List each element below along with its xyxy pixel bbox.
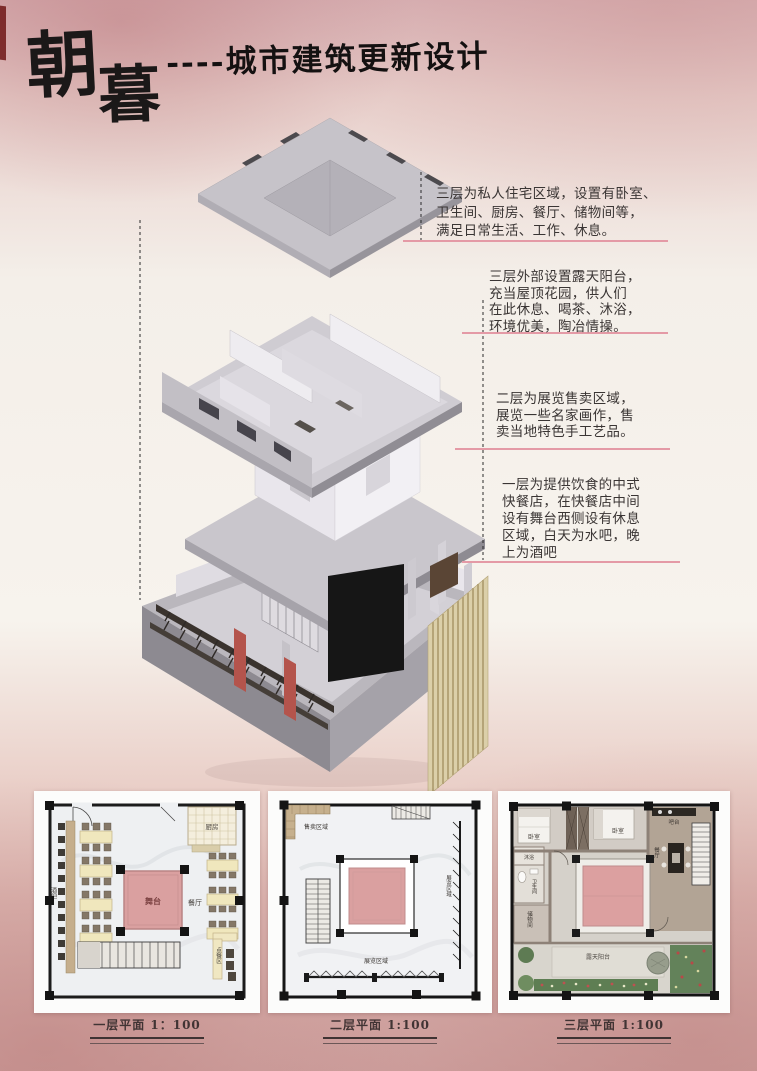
plan-card-floor2: 售卖区域 xyxy=(268,791,492,1013)
caption-rule xyxy=(90,1037,204,1039)
caption-rule xyxy=(557,1037,671,1039)
poster-subtitle: ----城市建筑更新设计 xyxy=(166,31,490,83)
label-toilet: 卫生间 xyxy=(531,879,537,895)
plan2-top-stairs xyxy=(392,806,430,819)
label-dining: 餐厅 xyxy=(188,898,202,907)
annotation-line: 充当屋顶花园，供人们 xyxy=(489,286,674,303)
plan-caption-floor2: 二层平面 1:100 xyxy=(299,1016,461,1044)
annotation-line: 卖当地特色手工艺品。 xyxy=(496,424,676,441)
annotation-floor3-private: 三层为私人住宅区域，设置有卧室、 卫生间、厨房、餐厅、储物间等， 满足日常生活、… xyxy=(436,185,676,241)
plan3-stairs xyxy=(692,823,710,885)
label-exhibit-bottom: 展览区域 xyxy=(364,957,388,965)
annotation-floor2-exhibition: 二层为展览售卖区域， 展览一些名家画作，售 卖当地特色手工艺品。 xyxy=(496,391,676,441)
annotation-line: 三层为私人住宅区域，设置有卧室、 xyxy=(436,185,676,204)
label-stage: 舞台 xyxy=(144,896,161,906)
plan-floor1-drawing: 厨房 酒吧 xyxy=(42,799,252,1005)
annotation-line: 环境优美，陶冶情操。 xyxy=(489,319,674,336)
caption-text: 三层平面 1:100 xyxy=(564,1018,664,1032)
label-dining3: 餐厅 xyxy=(653,846,660,859)
plan1-right-tables xyxy=(207,853,238,939)
plan1-stairs xyxy=(78,942,180,968)
annotation-line: 三层外部设置露天阳台， xyxy=(489,269,674,286)
caption-rule xyxy=(323,1043,437,1044)
annotation-line: 二层为展览售卖区域， xyxy=(496,391,676,408)
plan-floor2-drawing: 售卖区域 xyxy=(276,799,484,1005)
axon-roof xyxy=(198,118,462,278)
plan1-kitchen: 厨房 xyxy=(188,807,236,852)
annotation-floor1-restaurant: 一层为提供饮食的中式 快餐店，在快餐店中间 设有舞台西侧设有休息 区域，白天为水… xyxy=(502,476,677,561)
label-storage: 储物间 xyxy=(526,910,533,929)
plan-card-floor3: 卧室 卧室 吧台 餐厅 xyxy=(498,791,730,1013)
label-bedroom1: 卧室 xyxy=(528,833,540,841)
annotation-line: 区域，白天为水吧，晚 xyxy=(502,527,677,544)
caption-text: 一层平面 1：100 xyxy=(93,1018,201,1032)
poster-root: 朝 暮 ----城市建筑更新设计 三层为私人住宅区域，设置有卧室、 卫生间、厨房… xyxy=(0,0,757,1071)
annotation-line: 上为酒吧 xyxy=(502,544,677,561)
caption-rule xyxy=(90,1043,204,1044)
plan3-bedrooms: 卧室 卧室 xyxy=(514,807,646,851)
plan3-terrace: 露天阳台 xyxy=(514,945,712,993)
annotation-line: 卫生间、厨房、餐厅、储物间等， xyxy=(436,204,676,223)
caption-text: 二层平面 1:100 xyxy=(330,1018,430,1032)
annotation-line: 设有舞台西侧设有休息 xyxy=(502,510,677,527)
ink-corner-accent xyxy=(0,6,6,61)
caption-rule xyxy=(323,1037,437,1039)
plan-floor3-drawing: 卧室 卧室 吧台 餐厅 xyxy=(506,799,722,1005)
annotation-floor3-terrace: 三层外部设置露天阳台， 充当屋顶花园，供人们 在此休息、喝茶、沐浴， 环境优美，… xyxy=(489,269,674,335)
label-barcounter: 吧台 xyxy=(668,818,680,826)
label-exhibit-right: 展览区域 xyxy=(445,875,452,898)
annotation-line: 一层为提供饮食的中式 xyxy=(502,476,677,493)
plan-card-floor1: 厨房 酒吧 xyxy=(34,791,260,1013)
label-bath: 沐浴 xyxy=(524,854,534,861)
label-bedroom2: 卧室 xyxy=(612,827,624,835)
plan-caption-floor1: 一层平面 1：100 xyxy=(66,1016,228,1044)
plan2-stairs xyxy=(306,879,330,943)
plan2-stage-void xyxy=(340,859,414,933)
plan-caption-floor3: 三层平面 1:100 xyxy=(533,1016,695,1044)
label-kitchen: 厨房 xyxy=(206,822,219,831)
annotation-line: 快餐店，在快餐店中间 xyxy=(502,493,677,510)
label-terrace: 露天阳台 xyxy=(586,953,610,961)
title-char-morning: 朝 xyxy=(23,4,100,113)
caption-rule xyxy=(557,1043,671,1044)
label-order: 点餐区 xyxy=(215,947,222,964)
annotation-line: 满足日常生活、工作、休息。 xyxy=(436,222,676,241)
title-char-dusk: 暮 xyxy=(96,43,161,135)
plan3-atrium xyxy=(572,855,654,937)
annotation-line: 展览一些名家画作，售 xyxy=(496,408,676,425)
plan1-stage: 舞台 xyxy=(124,871,182,929)
annotation-line: 在此休息、喝茶、沐浴， xyxy=(489,302,674,319)
label-sale-area: 售卖区域 xyxy=(304,823,328,831)
